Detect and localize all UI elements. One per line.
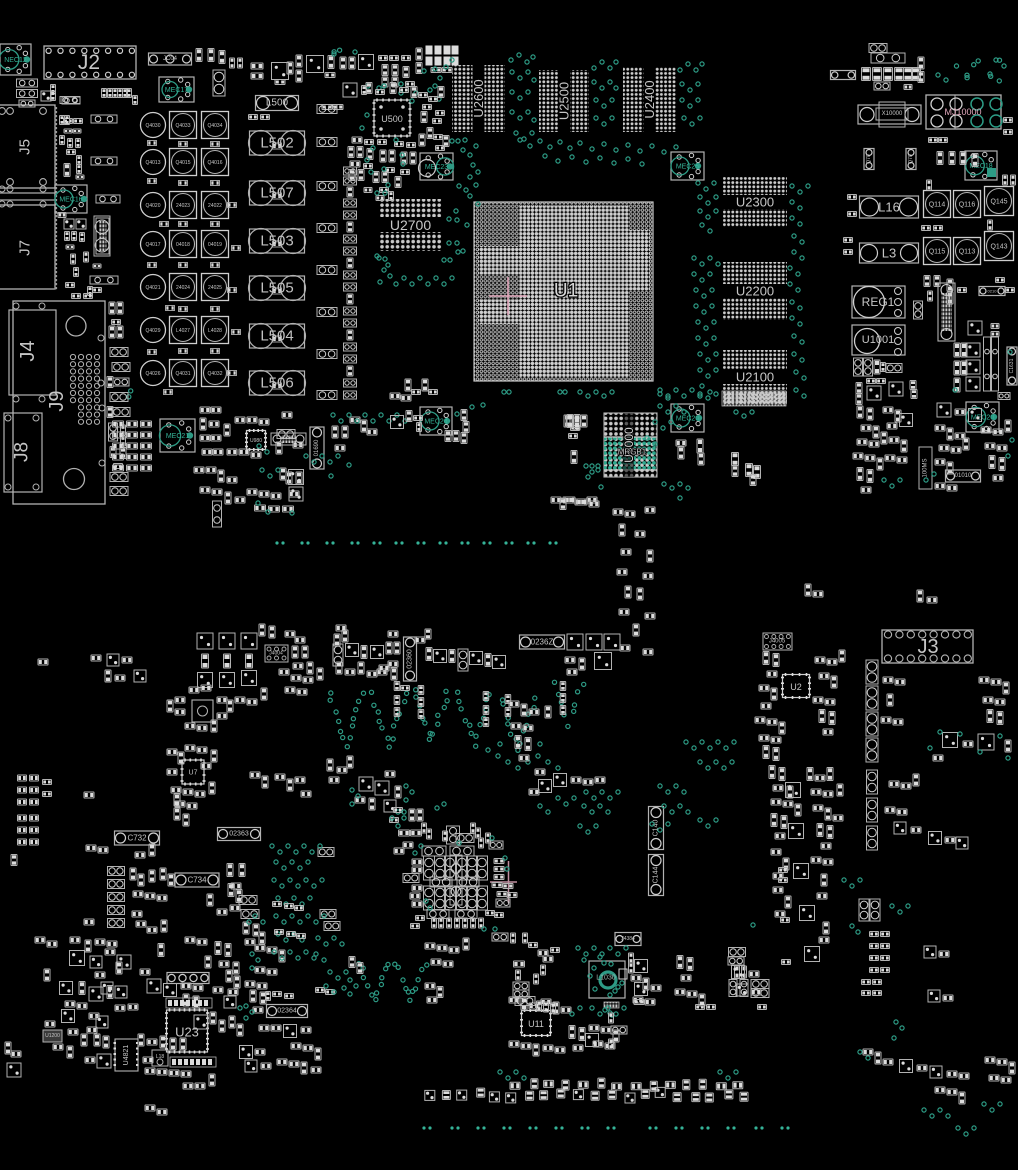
svg-text:Q113: Q113 (959, 249, 976, 256)
svg-text:01690: 01690 (314, 439, 320, 456)
svg-text:L504: L504 (260, 328, 293, 345)
svg-text:L18: L18 (156, 1054, 165, 1060)
svg-text:U11: U11 (528, 1019, 544, 1029)
svg-text:C1631: C1631 (1009, 358, 1015, 373)
svg-text:Q4017: Q4017 (145, 242, 160, 248)
svg-text:24022: 24022 (208, 203, 222, 209)
svg-text:L500: L500 (266, 98, 289, 109)
svg-text:04018: 04018 (176, 242, 190, 248)
svg-text:Q4034: Q4034 (207, 123, 222, 129)
svg-text:Q4021: Q4021 (145, 285, 160, 291)
svg-text:MEC24: MEC24 (424, 419, 447, 426)
svg-text:L1030: L1030 (596, 975, 616, 982)
svg-text:L16: L16 (878, 200, 900, 215)
svg-text:U4821: U4821 (123, 1045, 130, 1066)
svg-text:24025: 24025 (208, 285, 222, 291)
svg-text:U7: U7 (189, 770, 198, 777)
svg-text:C732: C732 (127, 834, 147, 843)
svg-text:L4028: L4028 (208, 328, 222, 334)
svg-text:U2400: U2400 (642, 80, 657, 118)
svg-text:MEC20: MEC20 (676, 416, 699, 423)
svg-text:02364: 02364 (277, 1008, 297, 1015)
svg-text:0210: 0210 (988, 289, 998, 294)
svg-text:U2100: U2100 (736, 370, 774, 385)
svg-text:Q4015: Q4015 (175, 160, 190, 166)
svg-text:Q4029: Q4029 (145, 328, 160, 334)
svg-text:MEC16: MEC16 (59, 197, 82, 204)
svg-text:24023: 24023 (176, 203, 190, 209)
svg-text:Q114: Q114 (929, 202, 946, 209)
svg-text:X10000: X10000 (882, 111, 903, 117)
svg-text:J2: J2 (78, 51, 100, 74)
svg-text:Q4016: Q4016 (207, 160, 222, 166)
svg-text:U980: U980 (250, 438, 262, 444)
svg-text:J4005: J4005 (769, 639, 786, 645)
svg-text:L507: L507 (260, 185, 293, 202)
svg-text:MJ10000: MJ10000 (944, 107, 981, 117)
svg-text:Q4031: Q4031 (175, 371, 190, 377)
svg-text:MEC23: MEC23 (425, 164, 448, 171)
svg-text:Q4013: Q4013 (145, 160, 160, 166)
svg-text:02363: 02363 (229, 831, 249, 838)
svg-text:U2200: U2200 (736, 284, 774, 299)
svg-text:L3: L3 (882, 246, 896, 261)
svg-text:L503: L503 (260, 233, 293, 250)
svg-text:Q70: Q70 (866, 154, 872, 164)
svg-text:Q4033: Q4033 (175, 123, 190, 129)
svg-text:Q115: Q115 (929, 249, 946, 256)
svg-text:0236Z: 0236Z (531, 638, 554, 647)
svg-text:C734: C734 (187, 876, 207, 885)
svg-text:J8: J8 (12, 442, 33, 462)
svg-text:U2300: U2300 (736, 195, 774, 210)
svg-text:J4384: J4384 (621, 936, 635, 942)
svg-text:MEC20: MEC20 (971, 415, 994, 422)
svg-text:J4: J4 (17, 340, 39, 361)
svg-text:Q70: Q70 (908, 154, 914, 164)
svg-text:Q143: Q143 (990, 244, 1007, 251)
svg-text:Q4032: Q4032 (207, 371, 222, 377)
svg-text:C144: C144 (653, 867, 660, 884)
svg-text:JC04: JC04 (163, 56, 178, 62)
svg-text:Q145: Q145 (990, 199, 1007, 206)
svg-text:Q4026: Q4026 (145, 371, 160, 377)
svg-text:MEC25: MEC25 (676, 164, 699, 171)
svg-text:J7: J7 (17, 240, 34, 256)
svg-text:100MS: 100MS (923, 458, 929, 477)
svg-text:U2700: U2700 (390, 217, 431, 233)
svg-text:02360: 02360 (407, 649, 414, 669)
svg-text:01010: 01010 (955, 473, 972, 479)
svg-text:U500: U500 (381, 114, 403, 124)
svg-text:U2: U2 (790, 682, 802, 692)
svg-text:REG1: REG1 (862, 295, 895, 309)
svg-text:J9: J9 (46, 390, 68, 411)
svg-text:L4027: L4027 (176, 328, 190, 334)
svg-text:x: x (546, 255, 550, 262)
svg-text:U2500: U2500 (557, 82, 572, 120)
svg-text:U6000: U6000 (622, 427, 636, 463)
svg-text:U2600: U2600 (471, 79, 486, 117)
svg-text:MRGB1: MRGB1 (618, 448, 647, 457)
svg-text:U1001: U1001 (862, 334, 894, 346)
svg-text:J4004: J4004 (269, 651, 283, 657)
svg-text:J5: J5 (17, 139, 34, 155)
svg-text:U1: U1 (554, 281, 578, 302)
svg-text:04019: 04019 (208, 242, 222, 248)
svg-text:L505: L505 (260, 280, 293, 297)
svg-text:Q4030: Q4030 (145, 123, 160, 129)
svg-text:L506: L506 (260, 375, 293, 392)
svg-text:L502: L502 (260, 135, 293, 152)
svg-text:U1200: U1200 (45, 1033, 60, 1039)
svg-text:NEC12: NEC12 (4, 57, 27, 64)
svg-text:MEC17: MEC17 (165, 87, 188, 94)
svg-text:Q116: Q116 (959, 202, 976, 209)
svg-text:J3: J3 (917, 636, 938, 658)
svg-text:MEC21: MEC21 (166, 433, 189, 440)
svg-text:Q4020: Q4020 (145, 203, 160, 209)
svg-text:24024: 24024 (176, 285, 190, 291)
svg-text:U23: U23 (175, 1025, 199, 1040)
